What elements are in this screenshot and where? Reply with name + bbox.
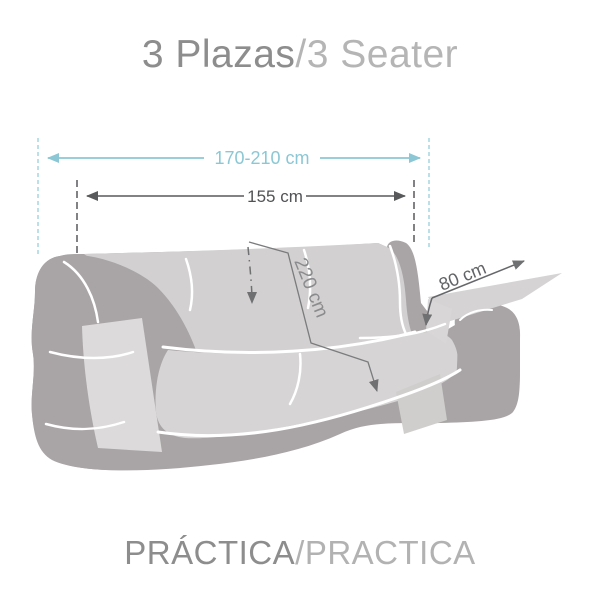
sofa-measurement-graphic: 170-210 cm 155 cm 220 cm 80 cm [0,0,600,600]
footer-primary: PRÁCTICA [124,534,295,571]
sofa-right-arm [455,304,520,420]
total-width-label: 170-210 cm [214,148,309,168]
dimension-inner-width: 155 cm [77,180,414,253]
dimension-total-width: 170-210 cm [38,138,429,257]
inner-width-label: 155 cm [247,187,303,206]
footer-secondary: /PRACTICA [295,534,476,571]
product-size-diagram: 3 Plazas/3 Seater [0,0,600,600]
footer-text: PRÁCTICA/PRACTICA [0,534,600,572]
